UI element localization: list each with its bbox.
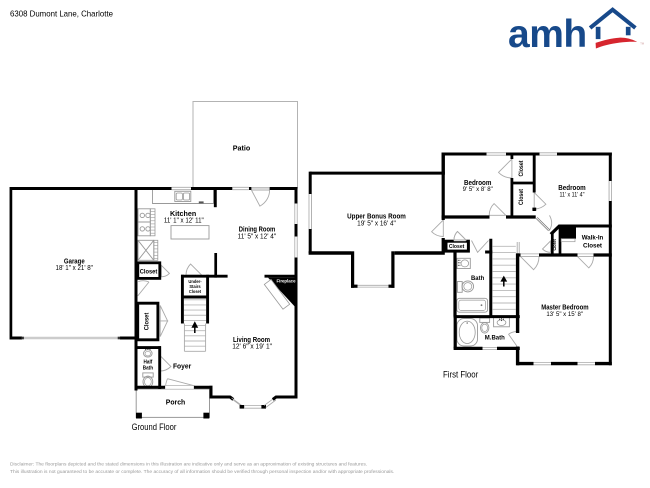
svg-text:TM: TM xyxy=(640,42,644,46)
svg-text:Closet: Closet xyxy=(519,161,525,177)
svg-text:Ground Floor: Ground Floor xyxy=(132,422,177,432)
svg-text:19' 5" x 16' 4": 19' 5" x 16' 4" xyxy=(357,219,396,228)
svg-text:13' 5" x 15' 8": 13' 5" x 15' 8" xyxy=(546,311,583,318)
svg-text:6308 Dumont Lane, Charlotte: 6308 Dumont Lane, Charlotte xyxy=(10,9,113,19)
svg-text:amh: amh xyxy=(508,13,587,56)
svg-text:Fireplace: Fireplace xyxy=(277,279,297,284)
svg-text:Closet: Closet xyxy=(143,312,150,330)
svg-text:9' 5" x 8' 8": 9' 5" x 8' 8" xyxy=(463,186,494,193)
svg-text:Closet: Closet xyxy=(552,239,557,251)
svg-text:Bath: Bath xyxy=(143,366,153,372)
svg-text:Closet: Closet xyxy=(519,189,525,205)
svg-text:11' 5" x 12' 4": 11' 5" x 12' 4" xyxy=(238,231,277,240)
svg-text:Closet: Closet xyxy=(189,289,202,294)
svg-text:First Floor: First Floor xyxy=(443,370,478,380)
svg-text:11' x 11' 4": 11' x 11' 4" xyxy=(560,192,586,199)
svg-text:Patio: Patio xyxy=(233,143,251,152)
svg-text:Walk-In: Walk-In xyxy=(582,234,604,241)
svg-text:11' 1" x 12' 11": 11' 1" x 12' 11" xyxy=(164,216,204,225)
svg-text:Foyer: Foyer xyxy=(173,361,191,370)
svg-text:12' 6" x 19' 1": 12' 6" x 19' 1" xyxy=(232,341,272,350)
svg-text:18' 1" x 21' 8": 18' 1" x 21' 8" xyxy=(56,263,94,272)
svg-text:Closet: Closet xyxy=(583,243,603,250)
svg-text:Porch: Porch xyxy=(166,397,186,406)
svg-text:Half: Half xyxy=(144,359,153,365)
svg-text:This illustration is not guara: This illustration is not guaranteed to b… xyxy=(10,469,394,475)
svg-text:Closet: Closet xyxy=(140,269,158,276)
svg-text:Disclaimer: The floorplans dep: Disclaimer: The floorplans depicted and … xyxy=(10,461,367,467)
svg-text:M.Bath: M.Bath xyxy=(485,335,505,342)
svg-text:Closet: Closet xyxy=(449,244,465,250)
svg-text:Bath: Bath xyxy=(471,275,484,282)
